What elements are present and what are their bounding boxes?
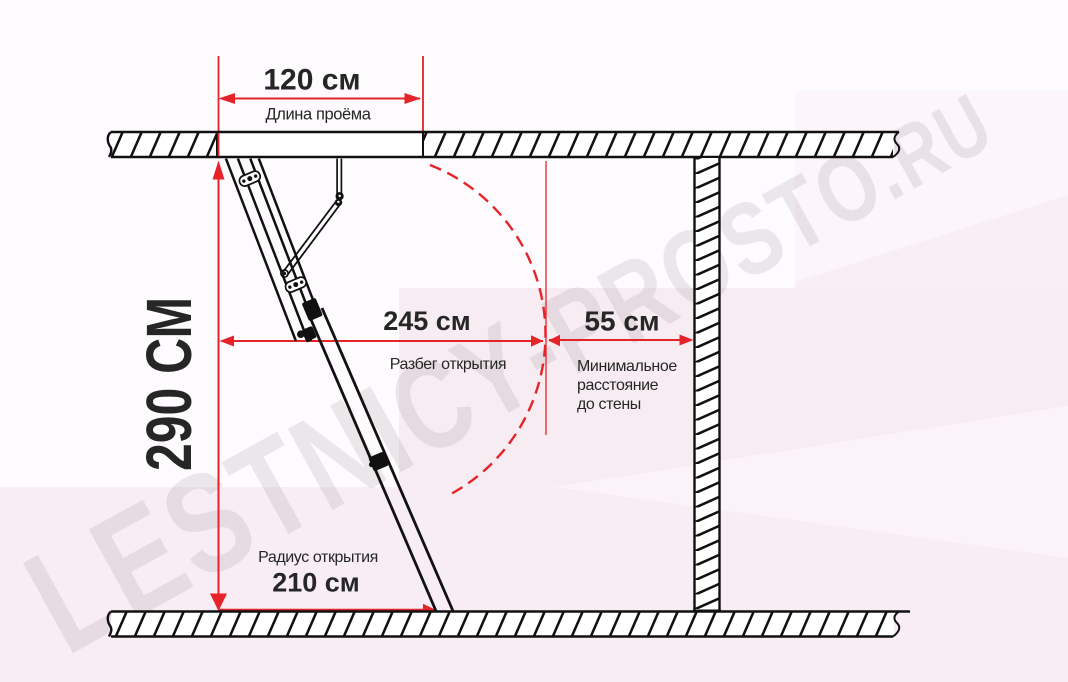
svg-text:Разбег открытия: Разбег открытия: [390, 356, 506, 373]
svg-text:210 см: 210 см: [272, 568, 360, 598]
svg-text:Минимальное: Минимальное: [577, 358, 677, 375]
svg-text:120 см: 120 см: [263, 64, 360, 97]
svg-text:до стены: до стены: [577, 396, 641, 413]
svg-text:290 СМ: 290 СМ: [134, 297, 205, 471]
svg-text:Длина проёма: Длина проёма: [265, 106, 371, 124]
svg-text:55 см: 55 см: [584, 306, 659, 337]
svg-text:245 см: 245 см: [383, 306, 471, 336]
svg-text:Радиус открытия: Радиус открытия: [258, 549, 378, 566]
svg-text:расстояние: расстояние: [577, 377, 659, 394]
